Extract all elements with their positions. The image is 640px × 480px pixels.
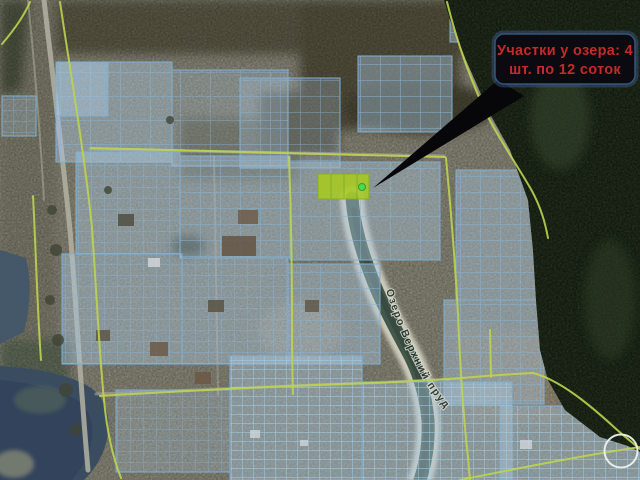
marsh-patch [14,386,66,414]
plot-rect [344,174,357,199]
parcel-block [76,152,180,254]
callout-line2: шт. по 12 соток [509,62,621,78]
plot-rect [331,174,344,199]
parcel-block [56,62,108,116]
parcel-block [116,390,230,472]
satellite-map: Озеро Верхний пруд Участки у озера: 4 шт… [0,0,640,480]
highlighted-plots [318,174,369,199]
screenshot-root: Озеро Верхний пруд Участки у озера: 4 шт… [0,0,640,480]
callout-box: Участки у озера: 4 шт. по 12 соток [493,32,637,86]
plot-marker-icon [359,184,366,191]
parcel-block [230,356,362,480]
parcel-block [2,96,36,136]
callout-line1: Участки у озера: 4 [497,43,633,59]
parcel-block [358,56,452,132]
parcel-block [182,258,288,364]
boundary-line [490,330,491,377]
plot-rect [318,174,331,199]
parcel-block [288,264,380,364]
